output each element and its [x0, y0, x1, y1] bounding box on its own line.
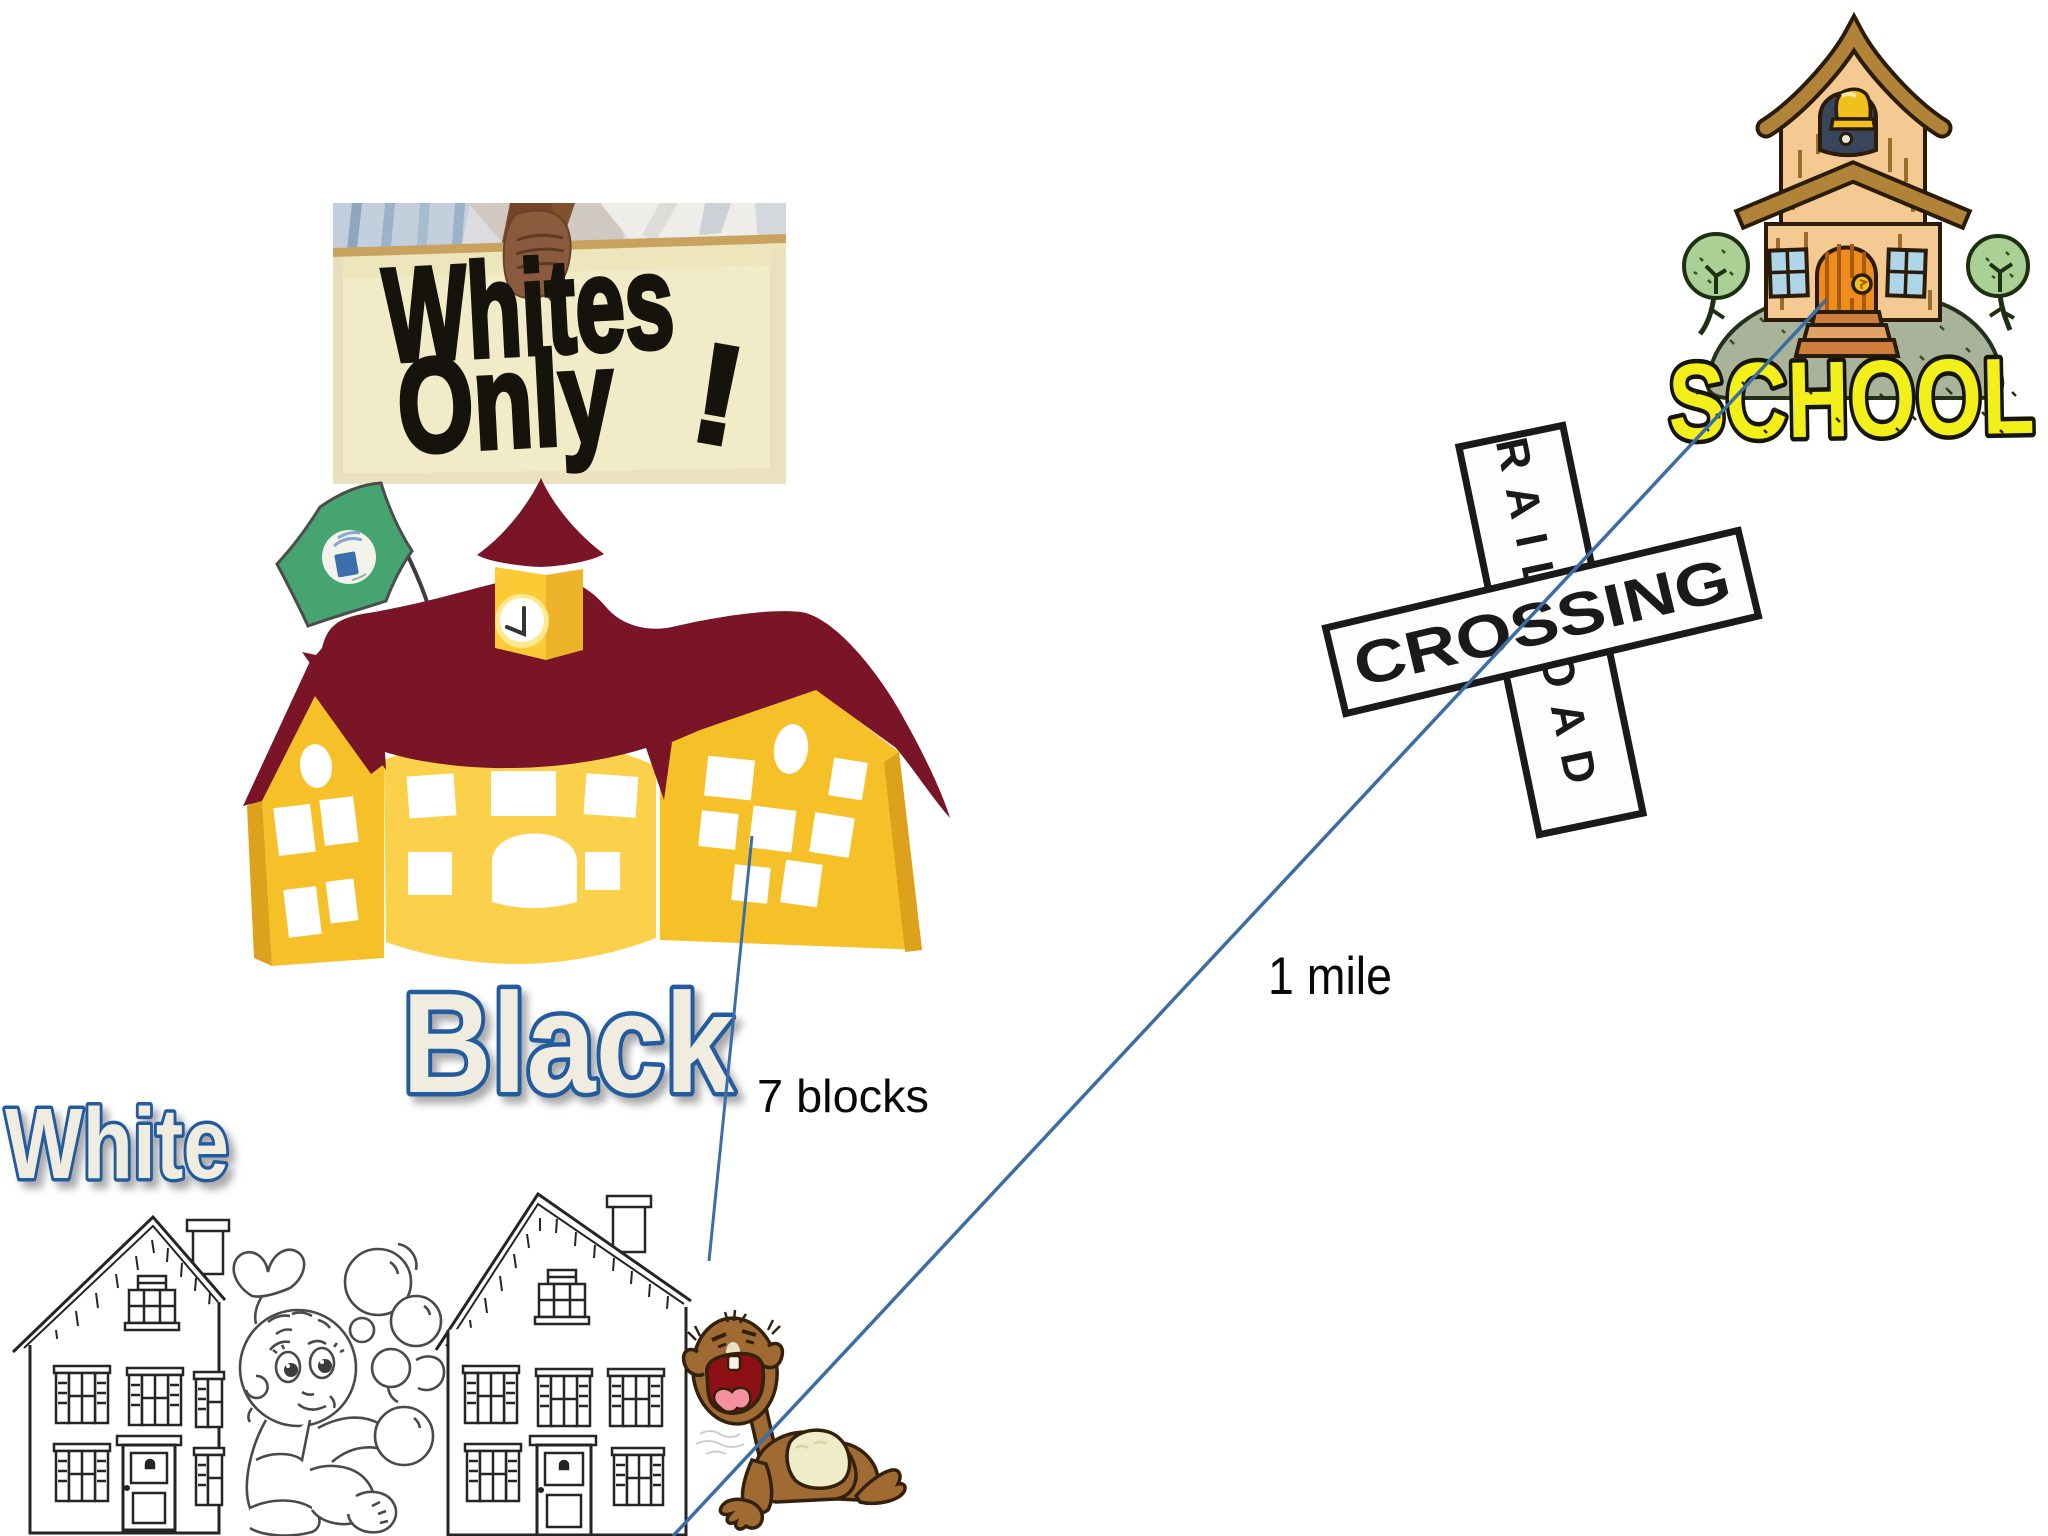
svg-text:SCHOOL: SCHOOL: [1667, 335, 2035, 462]
svg-text:Only: Only: [394, 323, 617, 482]
svg-text:1 mile: 1 mile: [1268, 947, 1392, 1006]
svg-text:White: White: [5, 1088, 229, 1200]
svg-text:7 blocks: 7 blocks: [757, 1070, 929, 1122]
svg-text:Black: Black: [402, 964, 735, 1123]
